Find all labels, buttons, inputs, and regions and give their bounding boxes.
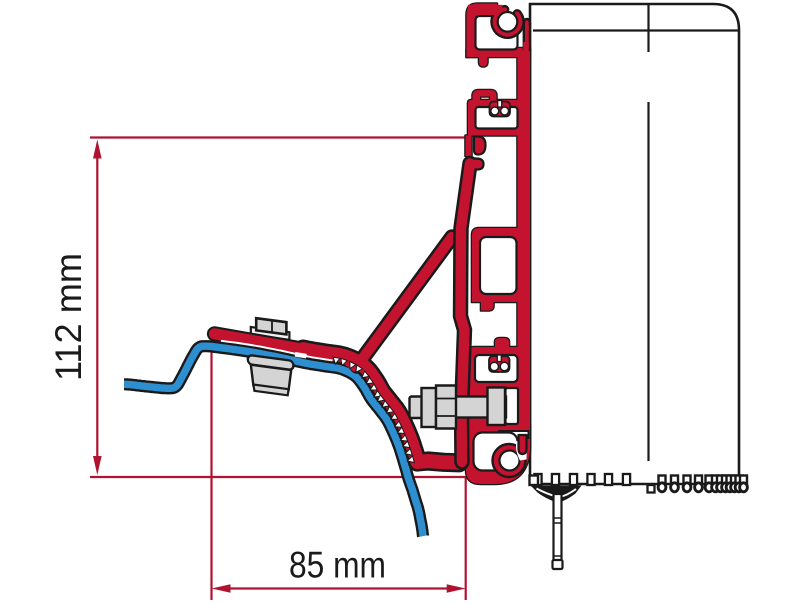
svg-text:112 mm: 112 mm: [48, 253, 89, 381]
svg-text:85 mm: 85 mm: [289, 545, 386, 586]
